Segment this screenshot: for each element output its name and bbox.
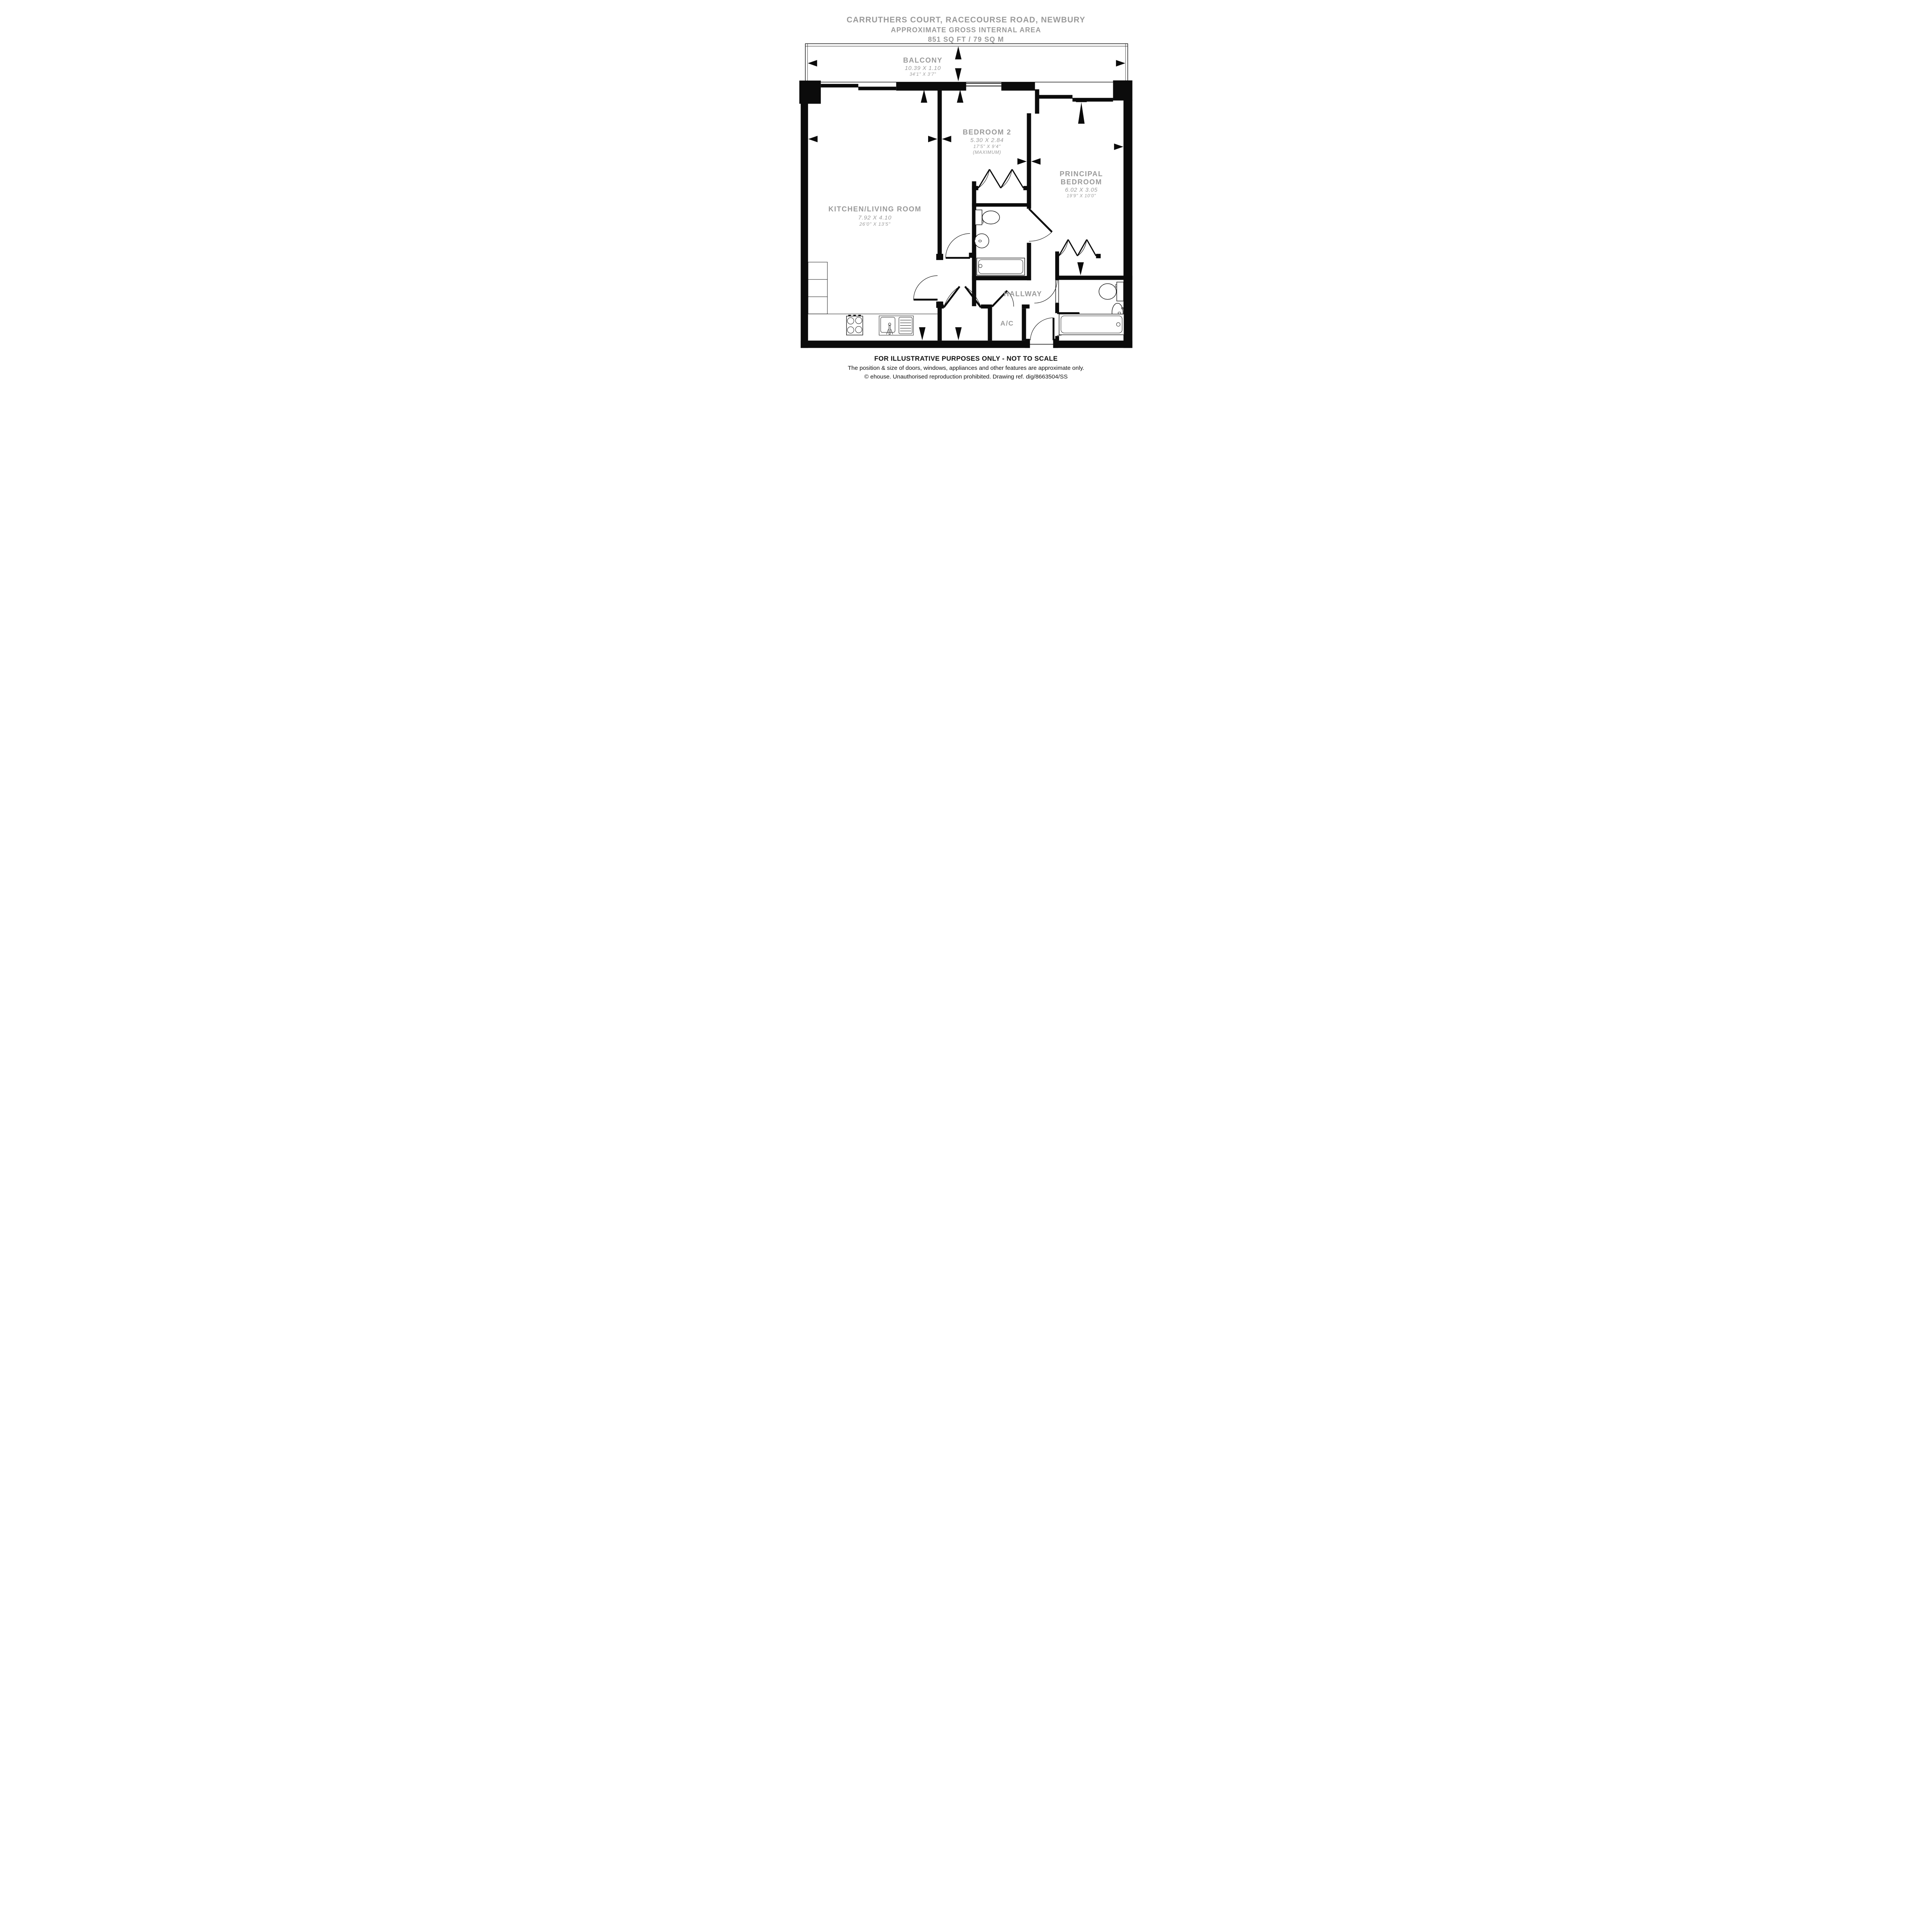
arrow-principal-top-icon [1078,102,1085,124]
title-block: CARRUTHERS COURT, RACECOURSE ROAD, NEWBU… [847,15,1085,43]
floorplan-page: CARRUTHERS COURT, RACECOURSE ROAD, NEWBU… [695,0,1237,383]
arrow-balcony-right-icon [1116,60,1125,66]
arrow-principal-width-left-icon [1031,158,1041,165]
wall-hall-ensuite-mid [1055,303,1059,313]
toilet-icon [975,210,1000,225]
principal-imperial: 19'9" X 10'0" [1067,194,1096,199]
arrow-hall-bottom-icon [955,327,962,340]
arrow-bedroom2-width-right-icon [1017,158,1027,165]
window-bar-living-2 [858,87,896,90]
wall-top-right-corner-block [1113,80,1133,100]
arrow-kitchen-width-right-icon [928,136,937,142]
hob-icon [847,315,863,335]
arrow-balcony-left-icon [808,60,817,66]
bedroom2-note: (MAXIMUM) [973,150,1001,155]
window-bar-principal-1 [1039,95,1072,99]
wardrobe2-bifold-icon [978,169,1024,188]
balcony-metric: 10.39 X 1.10 [905,65,941,71]
arrow-principal-width-right-icon [1114,143,1123,150]
wall-bottom-right-run [1053,340,1132,348]
footer-copyright: © ehouse. Unauthorised reproduction proh… [864,373,1068,380]
title-area-value: 851 SQ FT / 79 SQ M [928,36,1004,43]
balcony-border [805,44,1128,82]
principal-label-2: BEDROOM [1061,178,1102,186]
wall-bathroom-top [972,203,1031,207]
ensuite-toilet-icon [1099,282,1124,301]
wardrobe2-jamb-left [972,186,978,190]
title-address: CARRUTHERS COURT, RACECOURSE ROAD, NEWBU… [847,15,1085,24]
principal-label-1: PRINCIPAL [1060,170,1103,178]
title-area-caption: APPROXIMATE GROSS INTERNAL AREA [891,26,1041,34]
ensuite-bath-icon [1059,314,1124,335]
balcony-imperial: 34'1" X 3'7" [910,72,936,77]
wall-hall-north-3 [1022,305,1029,308]
hallway-label: HALLWAY [1004,289,1042,298]
arrow-balcony-bottom-icon [955,68,962,81]
bathroom-fixtures [974,210,1025,275]
wardrobe-principal-bifold-icon [1059,240,1096,256]
arrow-balcony-top-icon [955,46,962,60]
bathroom-door-arc [1029,232,1052,241]
dimension-arrows [808,46,1126,340]
wall-hall-ensuite-bottom [1055,336,1059,340]
wall-kitchen-door-jamb-top [936,254,943,260]
counter-left-icon [808,262,827,314]
window-bar-living-1 [821,84,858,87]
wall-bathroom-bottom [972,276,1031,280]
bedroom2-door-jamb [969,253,976,258]
arrow-kitchen-bottom-icon [919,327,925,340]
footer-block: FOR ILLUSTRATIVE PURPOSES ONLY - NOT TO … [848,354,1084,380]
bedroom2-metric: 5.30 X 2.84 [970,137,1004,144]
principal-metric: 6.02 X 3.05 [1065,187,1098,193]
bath-icon [977,258,1025,275]
bedroom2-door-arc [946,233,970,258]
arrow-bedroom2-width-left-icon [942,136,951,142]
window-bar-principal-2 [1073,98,1113,102]
tap-icon [889,325,890,334]
arrow-kitchen-width-left-icon [808,136,818,142]
bathroom-door-leaf [1029,209,1052,232]
wall-hall-north-1 [937,305,944,308]
bedroom2-imperial: 17'5" X 9'4" [973,144,1001,149]
ac-label: A/C [1000,319,1014,327]
front-door-arc [1030,318,1053,340]
wardrobe-principal-jamb-right [1096,254,1101,258]
wall-bedroom2-principal [1027,113,1031,209]
wall-stub-bed2-top [1035,89,1039,114]
arrow-bedroom2-top-icon [957,90,963,103]
wall-bathroom-right-lower [1027,243,1031,280]
arrow-kitchen-top-icon [921,90,927,103]
wall-bottom-left-run [801,340,1030,348]
footer-disclaimer-detail: The position & size of doors, windows, a… [848,365,1084,371]
arrow-principal-bottom-icon [1077,262,1084,276]
kitchen-fixtures [808,262,937,335]
wall-left [801,82,808,348]
bedroom2-label: BEDROOM 2 [963,128,1012,136]
wall-ac-left [988,306,992,340]
balcony-label: BALCONY [903,56,942,64]
footer-disclaimer-bold: FOR ILLUSTRATIVE PURPOSES ONLY - NOT TO … [874,354,1058,362]
balcony-door [966,83,1001,86]
kitchen-living-metric: 7.92 X 4.10 [858,214,892,221]
ensuite-fixtures [1059,282,1124,335]
floorplan-drawing: CARRUTHERS COURT, RACECOURSE ROAD, NEWBU… [695,0,1237,383]
wall-top-mid-left [896,82,966,90]
wall-principal-bottom [1058,276,1132,280]
wall-right [1124,100,1133,348]
wall-kitchen-bedroom2 [937,89,942,260]
kitchen-sink-icon [879,316,913,335]
wall-ac-right [1022,308,1026,340]
wall-top-mid-right [1001,82,1035,90]
kitchen-living-label: KITCHEN/LIVING ROOM [828,205,922,213]
kitchen-living-imperial: 26'0" X 13'5" [859,221,890,227]
balcony-outline [805,44,1128,82]
kitchen-door-arc [913,276,937,299]
